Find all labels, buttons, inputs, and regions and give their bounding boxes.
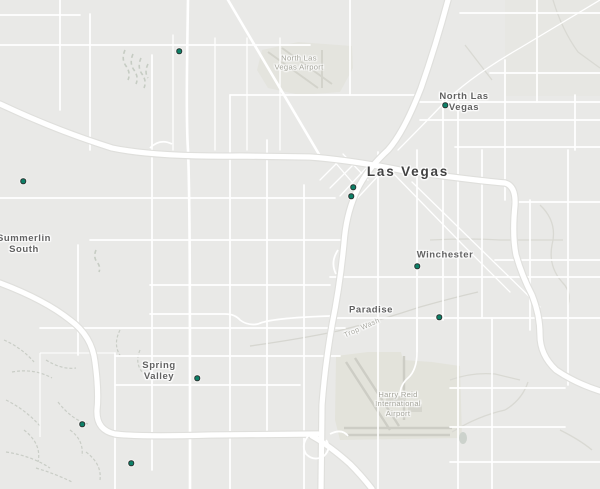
poi-marker[interactable] [176,48,182,54]
las-vegas-map[interactable]: North Las Vegas AirportNorth Las VegasLa… [0,0,600,489]
poi-marker[interactable] [20,178,26,184]
poi-marker[interactable] [194,375,200,381]
poi-marker[interactable] [442,102,448,108]
poi-marker[interactable] [128,460,134,466]
poi-marker[interactable] [414,263,420,269]
poi-marker[interactable] [348,193,354,199]
poi-marker[interactable] [436,314,442,320]
poi-marker[interactable] [350,184,356,190]
map-markers-layer [0,0,600,489]
poi-marker[interactable] [79,421,85,427]
